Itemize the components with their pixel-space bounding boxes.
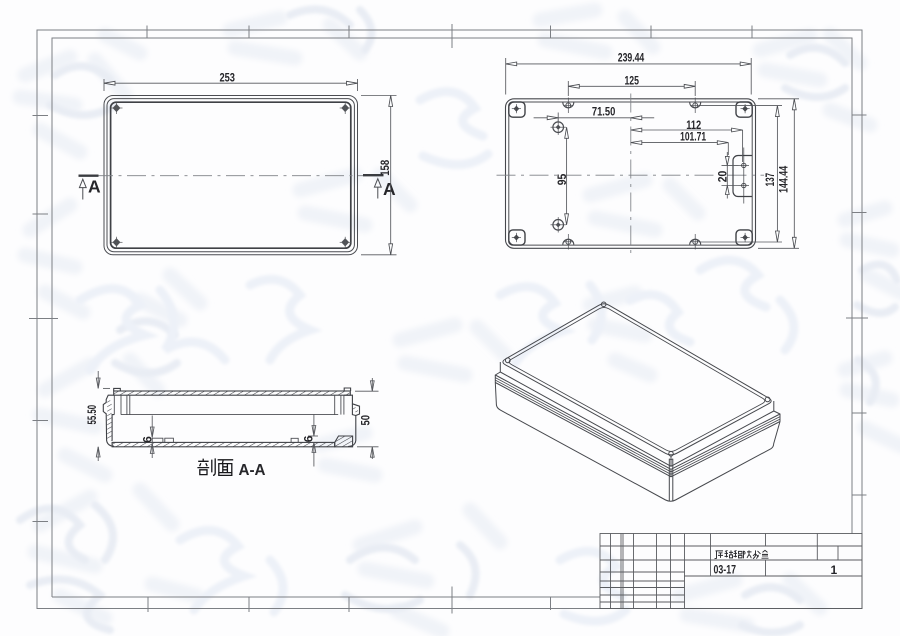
svg-text:144.44: 144.44	[776, 166, 790, 193]
svg-text:20: 20	[716, 170, 730, 182]
svg-text:239.44: 239.44	[618, 51, 645, 65]
svg-text:6: 6	[141, 436, 155, 443]
svg-text:A: A	[88, 176, 101, 196]
svg-text:A: A	[383, 179, 396, 199]
svg-text:03-17: 03-17	[714, 563, 737, 577]
svg-text:101.71: 101.71	[680, 129, 706, 143]
svg-text:1: 1	[831, 563, 838, 577]
svg-text:253: 253	[219, 71, 235, 85]
svg-text:71.50: 71.50	[592, 105, 616, 119]
svg-text:6: 6	[301, 435, 315, 442]
svg-text:55.50: 55.50	[85, 405, 99, 425]
svg-text:50: 50	[358, 415, 372, 426]
svg-text:158: 158	[378, 160, 392, 176]
svg-text:A-A: A-A	[239, 462, 266, 479]
svg-text:95: 95	[555, 173, 569, 185]
svg-text:137: 137	[765, 173, 777, 187]
svg-text:125: 125	[624, 73, 639, 87]
